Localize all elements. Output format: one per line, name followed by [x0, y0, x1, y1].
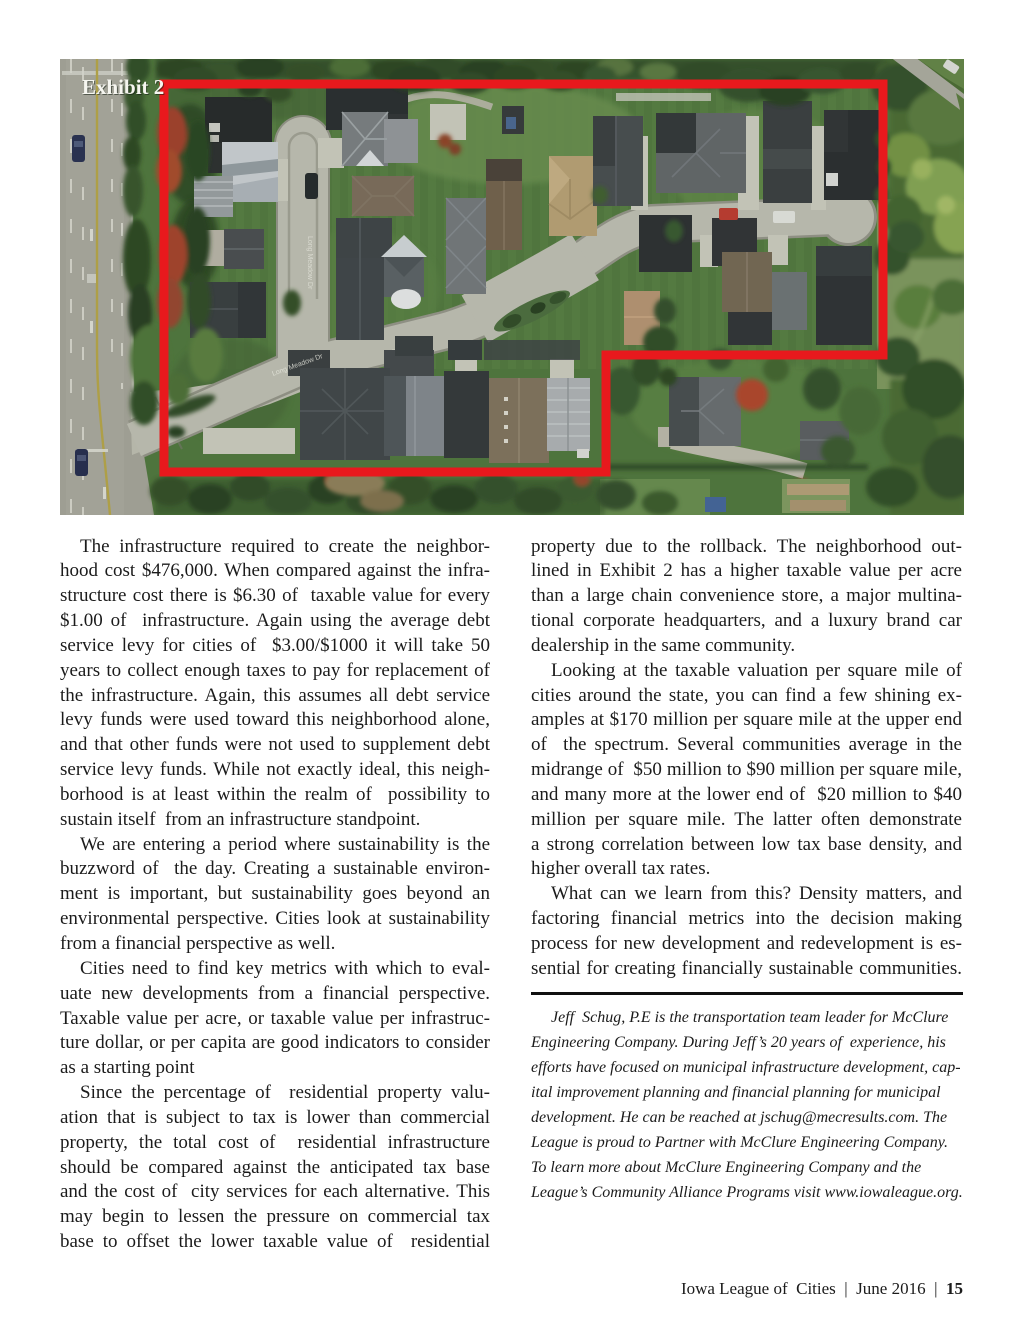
svg-text:Exhibit 2: Exhibit 2 — [82, 75, 164, 99]
